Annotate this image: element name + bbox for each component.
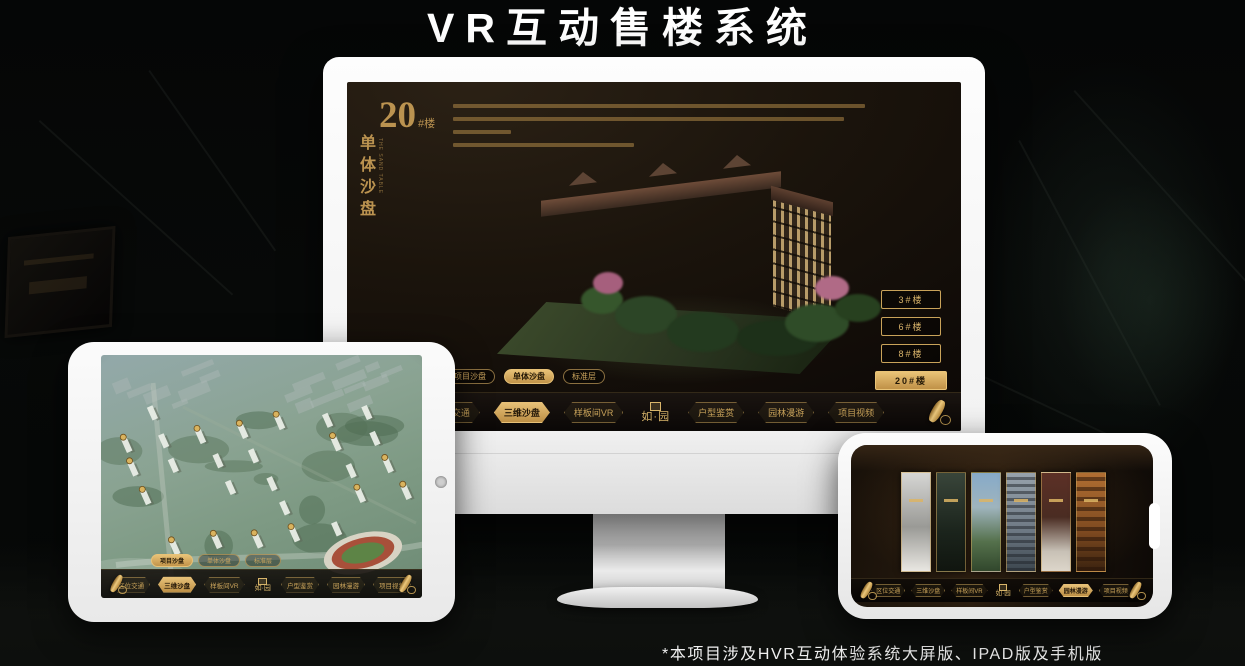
tab-2[interactable]: 单体沙盘 bbox=[198, 554, 240, 567]
nav-scroll-left-icon[interactable] bbox=[857, 580, 878, 601]
footnote: *本项目涉及HVR互动体验系统大屏版、IPAD版及手机版 bbox=[662, 640, 1242, 664]
interior-ceiling-shadow bbox=[851, 445, 1153, 471]
tablet-screen: 项目沙盘单体沙盘标准层 区位交通三维沙盘样板间VR如·园户型鉴赏园林漫游项目视频 bbox=[101, 355, 422, 598]
tab-1[interactable]: 项目沙盘 bbox=[151, 554, 193, 567]
phone-screen: 区位交通三维沙盘样板间VR如·园户型鉴赏园林漫游项目视频 bbox=[851, 445, 1153, 607]
tab-3[interactable]: 标准层 bbox=[563, 369, 605, 384]
heading-vertical-text: 单体沙盘 bbox=[353, 134, 377, 222]
intro-text-line bbox=[453, 130, 511, 134]
nav-logo[interactable]: 如·园 bbox=[641, 402, 670, 423]
nav-item-3[interactable]: 样板间VR bbox=[204, 577, 245, 593]
background-road-line bbox=[148, 70, 276, 251]
building-heading: 20#楼 bbox=[379, 97, 435, 134]
gallery-panel-autumn-scene[interactable] bbox=[1041, 472, 1071, 572]
gallery-panel-shelf-interior-scene[interactable] bbox=[1076, 472, 1106, 572]
nav-logo[interactable]: 如·园 bbox=[255, 578, 271, 592]
roof-gable bbox=[569, 170, 597, 185]
tab-3[interactable]: 标准层 bbox=[245, 554, 281, 567]
phone: 区位交通三维沙盘样板间VR如·园户型鉴赏园林漫游项目视频 bbox=[838, 433, 1172, 619]
logo-text: 如·园 bbox=[996, 591, 1011, 598]
nav-item-3[interactable]: 样板间VR bbox=[951, 584, 987, 597]
nav-scroll-right-icon[interactable] bbox=[395, 573, 417, 595]
nav-item-4[interactable]: 户型鉴赏 bbox=[281, 577, 319, 593]
phone-notch bbox=[1149, 503, 1160, 549]
roof-gable bbox=[649, 161, 677, 176]
floor-button-3[interactable]: 8#楼 bbox=[881, 344, 941, 363]
nav-item-2[interactable]: 三维沙盘 bbox=[911, 584, 945, 597]
logo-text: 如·园 bbox=[255, 585, 271, 592]
background-haze bbox=[980, 60, 1245, 480]
nav-item-6[interactable]: 项目视频 bbox=[828, 402, 884, 423]
roof-gable bbox=[723, 153, 751, 168]
nav-scroll-right-icon[interactable] bbox=[923, 398, 953, 426]
gallery-panel-sketch-scene[interactable] bbox=[901, 472, 931, 572]
floor-button-1[interactable]: 3#楼 bbox=[881, 290, 941, 309]
nav-logo[interactable]: 如·园 bbox=[996, 584, 1011, 598]
tablet-sandbox-tabs: 项目沙盘单体沙盘标准层 bbox=[151, 554, 281, 567]
logo-text: 如·园 bbox=[641, 412, 670, 423]
nav-item-5[interactable]: 园林漫游 bbox=[758, 402, 814, 423]
nav-item-4[interactable]: 户型鉴赏 bbox=[1019, 584, 1053, 597]
floor-button-4[interactable]: 20#楼 bbox=[875, 371, 947, 390]
monitor-stand bbox=[593, 512, 725, 594]
monitor-stand-base bbox=[557, 587, 758, 608]
tablet: 项目沙盘单体沙盘标准层 区位交通三维沙盘样板间VR如·园户型鉴赏园林漫游项目视频 bbox=[68, 342, 455, 622]
floor-button-2[interactable]: 6#楼 bbox=[881, 317, 941, 336]
tablet-nav-bar: 区位交通三维沙盘样板间VR如·园户型鉴赏园林漫游项目视频 bbox=[101, 569, 422, 598]
intro-text-line bbox=[453, 117, 844, 121]
gallery-panel-dark-interior-scene[interactable] bbox=[936, 472, 966, 572]
nav-item-2[interactable]: 三维沙盘 bbox=[494, 402, 550, 423]
nav-scroll-right-icon[interactable] bbox=[1126, 580, 1147, 601]
gallery-panel-courtyard-scene[interactable] bbox=[971, 472, 1001, 572]
nav-item-5[interactable]: 园林漫游 bbox=[327, 577, 365, 593]
intro-text-line bbox=[453, 104, 865, 108]
logo-seal-icon bbox=[650, 402, 661, 411]
background-plaque bbox=[5, 226, 116, 338]
gallery-panel-building-scene[interactable] bbox=[1006, 472, 1036, 572]
tab-2[interactable]: 单体沙盘 bbox=[504, 369, 554, 384]
poster: VR互动售楼系统 20#楼 单体沙盘 THE SAND TABLE bbox=[0, 0, 1245, 666]
floor-button-group: 3#楼6#楼8#楼20#楼 bbox=[875, 290, 947, 390]
building-render bbox=[485, 144, 877, 400]
nav-items: 区位交通三维沙盘样板间VR如·园户型鉴赏园林漫游项目视频 bbox=[868, 584, 1136, 598]
phone-nav-bar: 区位交通三维沙盘样板间VR如·园户型鉴赏园林漫游项目视频 bbox=[851, 578, 1153, 602]
tablet-camera-icon bbox=[73, 458, 99, 484]
sandbox-tabs: 项目沙盘单体沙盘标准层 bbox=[445, 369, 605, 384]
nav-items: 区位交通三维沙盘样板间VR如·园户型鉴赏园林漫游项目视频 bbox=[417, 402, 891, 423]
building-number: 20 bbox=[379, 95, 416, 136]
tree bbox=[667, 312, 739, 352]
logo-seal-icon bbox=[258, 578, 267, 585]
tablet-home-button bbox=[435, 476, 447, 488]
nav-item-3[interactable]: 样板间VR bbox=[564, 402, 624, 423]
nav-item-5[interactable]: 园林漫游 bbox=[1059, 584, 1093, 597]
scene-gallery bbox=[901, 472, 1106, 572]
nav-items: 区位交通三维沙盘样板间VR如·园户型鉴赏园林漫游项目视频 bbox=[108, 577, 415, 593]
nav-item-2[interactable]: 三维沙盘 bbox=[158, 577, 196, 593]
building-number-suffix: #楼 bbox=[418, 118, 435, 130]
heading-vertical-english: THE SAND TABLE bbox=[377, 138, 383, 194]
page-title: VR互动售楼系统 bbox=[0, 0, 1245, 56]
nav-scroll-left-icon[interactable] bbox=[106, 573, 128, 595]
nav-item-4[interactable]: 户型鉴赏 bbox=[688, 402, 744, 423]
